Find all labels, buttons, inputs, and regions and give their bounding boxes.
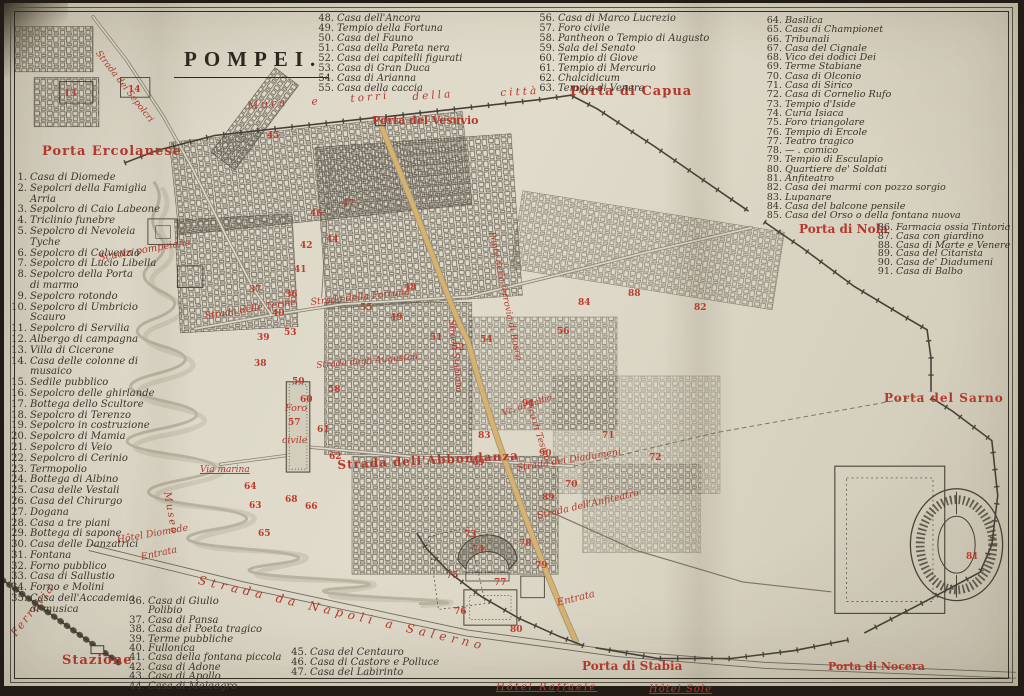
amphitheatre	[910, 489, 1002, 601]
legend-top-mid2: 56.Casa di Marco Lucrezio57.Foro civile5…	[538, 14, 748, 94]
map-ref-number: 77	[494, 578, 507, 588]
map-ref-number: 89	[542, 493, 555, 503]
gate-ercolanese: Porta Ercolanese	[42, 144, 182, 159]
gate-vesuvio: Porta del Vesuvio	[372, 114, 478, 127]
map-ref-number: 69	[472, 458, 485, 468]
map-ref-number: 56	[557, 327, 570, 337]
map-ref-number: 48	[404, 283, 417, 293]
map-ref-number: 46	[310, 209, 323, 219]
legend-item-label: Casa del Labirinto	[310, 668, 403, 678]
legend-item: 9.Sepolcro rotondo	[10, 292, 168, 303]
legend-item: 91.Casa di Balbo	[876, 268, 1024, 277]
legend-item-number: 14.	[10, 357, 27, 379]
legend-item-number: 91.	[876, 268, 893, 277]
legend-item: 44.Casa di Meleagro	[128, 682, 308, 691]
legend-item-label: Sepolcro di Cerinio	[30, 454, 128, 465]
map-ref-number: 49	[390, 313, 403, 323]
legend-item-number: 63.	[538, 84, 555, 94]
map-ref-number: 72	[649, 453, 662, 463]
map-ref-number: 57	[288, 418, 301, 428]
map-ref-number: 39	[257, 333, 270, 343]
legend-item: 27.Dogana	[10, 508, 168, 519]
legend-right2: 86.Farmacia ossia Tintoria87.Casa con gi…	[876, 224, 1024, 277]
map-title: POMPEI.	[174, 47, 328, 78]
legend-item-label: Casa delle colonne di musaico	[30, 357, 168, 379]
legend-item-number: 9.	[10, 292, 27, 303]
map-ref-number: 60	[300, 395, 313, 405]
legend-item-label: Tempio di Venere	[558, 84, 644, 94]
map-ref-number: 84	[578, 298, 591, 308]
hotel-sole: Hôtel Sole	[649, 684, 712, 695]
map-ref-number: 88	[628, 289, 641, 299]
map-ref-number: 65	[258, 529, 271, 539]
legend-item-number: 44.	[128, 682, 145, 691]
map-ref-number: 41	[294, 265, 307, 275]
map-ref-number: 50	[292, 377, 305, 387]
legend-item-number: 5.	[10, 227, 27, 249]
scanned-map-page: POMPEI. Porta ErcolanesePorta del Vesuvi…	[0, 0, 1024, 696]
legend-item-label: Sepolcro di Nevoleia Tyche	[30, 227, 168, 249]
gate-stabia: Porta di Stabia	[582, 659, 682, 673]
legend-item: 10.Sepolcro di Umbricio Scauro	[10, 303, 168, 325]
map-ref-number: 38	[254, 359, 267, 369]
wall-label-2: e	[311, 95, 318, 107]
legend-item: 13.Villa di Cicerone	[10, 346, 168, 357]
legend-item: 47.Casa del Labirinto	[290, 668, 480, 678]
legend-item-number: 47.	[290, 668, 307, 678]
legend-item-label: Bottega dello Scultore	[30, 400, 144, 411]
map-ref-number: 45	[267, 131, 280, 141]
legend-item-number: 2.	[10, 184, 27, 206]
palestra	[835, 466, 945, 613]
legend-top-mid: 48.Casa dell'Ancora49.Tempio della Fortu…	[317, 14, 517, 94]
legend-item-number: 17.	[10, 400, 27, 411]
map-ref-number: 80	[510, 625, 523, 635]
map-ref-number: 83	[478, 431, 491, 441]
map-ref-number: 13	[64, 89, 77, 99]
legend-west: 1.Casa di Diomede2.Sepolcri della Famigl…	[10, 173, 168, 616]
legend-item-label: Sepolcri della Famiglia Arria	[30, 184, 147, 206]
legend-item-label: Sepolcro rotondo	[30, 292, 118, 303]
map-ref-number: 54	[480, 335, 493, 345]
map-ref-number: 79	[535, 561, 548, 571]
map-ref-number: 42	[300, 241, 313, 251]
station-label: Stazione	[62, 653, 133, 668]
map-ref-number: 71	[602, 431, 615, 441]
map-ref-number: 78	[519, 539, 532, 549]
map-ref-number: 66	[305, 502, 318, 512]
street-marina: Via marina	[200, 465, 250, 475]
map-ref-number: 47	[342, 199, 355, 209]
legend-item-label: Casa dell'Accademia di musica	[30, 594, 135, 616]
map-ref-number: 76	[454, 607, 467, 617]
map-ref-number: 53	[284, 328, 297, 338]
legend-item-number: 27.	[10, 508, 27, 519]
legend-item-number: 22.	[10, 454, 27, 465]
legend-item-number: 8.	[10, 270, 27, 292]
map-ref-number: 63	[249, 501, 262, 511]
map-ref-number: 81	[966, 552, 979, 562]
gate-sarno: Porta del Sarno	[884, 391, 1004, 405]
legend-item: 63.Tempio di Venere	[538, 84, 748, 94]
forum-label-2: civile	[282, 435, 307, 446]
map-ref-number: 91	[522, 399, 535, 409]
map-ref-number: 14	[128, 85, 141, 95]
legend-item-number: 85.	[765, 211, 782, 220]
legend-item: 5.Sepolcro di Nevoleia Tyche	[10, 227, 168, 249]
map-ref-number: 40	[272, 309, 285, 319]
legend-item: 2.Sepolcri della Famiglia Arria	[10, 184, 168, 206]
map-ref-number: 55	[360, 303, 373, 313]
paper: POMPEI. Porta ErcolanesePorta del Vesuvi…	[4, 3, 1018, 686]
map-ref-number: 37	[249, 285, 262, 295]
legend-item-label: Villa di Cicerone	[30, 346, 114, 357]
map-ref-number: 73	[464, 530, 477, 540]
legend-item-label: Casa di Giulio Polibio	[148, 597, 219, 616]
gate-nocera: Porta di Nocera	[828, 660, 925, 673]
map-ref-number: 44	[326, 235, 339, 245]
legend-item-label: Casa del Orso o della fontana nuova	[785, 211, 961, 220]
map-ref-number: 75	[446, 571, 459, 581]
legend-item: 22.Sepolcro di Cerinio	[10, 454, 168, 465]
map-ref-number: 58	[328, 385, 341, 395]
legend-item-number: 13.	[10, 346, 27, 357]
gate-nola: Porta di Nola	[799, 222, 888, 236]
legend-item-number: 10.	[10, 303, 27, 325]
map-ref-number: 74	[472, 545, 485, 555]
map-ref-number: 36	[285, 290, 298, 300]
legend-item: 17.Bottega dello Scultore	[10, 400, 168, 411]
map-ref-number: 62	[329, 452, 342, 462]
legend-item-label: Sepolcro di Umbricio Scauro	[30, 303, 168, 325]
legend-item: 8.Sepolcro della Porta di marmo	[10, 270, 168, 292]
map-ref-number: 70	[565, 480, 578, 490]
map-ref-number: 90	[539, 449, 552, 459]
legend-southwest: 36.Casa di Giulio Polibio37.Casa di Pans…	[128, 597, 308, 691]
legend-item: 55.Casa della caccia	[317, 84, 517, 94]
legend-item-label: Casa di Balbo	[896, 268, 963, 277]
legend-item-label: Casa della caccia	[337, 84, 423, 94]
map-ref-number: 61	[317, 425, 330, 435]
map-ref-number: 68	[285, 495, 298, 505]
legend-south: 45.Casa del Centauro46.Casa di Castore e…	[290, 648, 480, 679]
legend-item-number: 36.	[128, 597, 145, 616]
legend-item: 85.Casa del Orso o della fontana nuova	[765, 211, 1015, 220]
legend-item-label: Casa di Meleagro	[148, 682, 237, 691]
legend-item-label: Dogana	[30, 508, 69, 519]
map-ref-number: 51	[430, 333, 443, 343]
legend-item: 36.Casa di Giulio Polibio	[128, 597, 308, 616]
legend-item-number: 35.	[10, 594, 27, 616]
map-ref-number: 82	[694, 303, 707, 313]
legend-item-label: Sepolcro della Porta di marmo	[30, 270, 133, 292]
map-ref-number: 52	[452, 343, 465, 353]
legend-right: 64.Basilica65.Casa di Championet66.Tribu…	[765, 16, 1015, 221]
legend-item-number: 55.	[317, 84, 334, 94]
hotel-raffaele: Hôtel Raffaele	[496, 682, 597, 693]
map-ref-number: 64	[244, 482, 257, 492]
legend-item: 14.Casa delle colonne di musaico	[10, 357, 168, 379]
